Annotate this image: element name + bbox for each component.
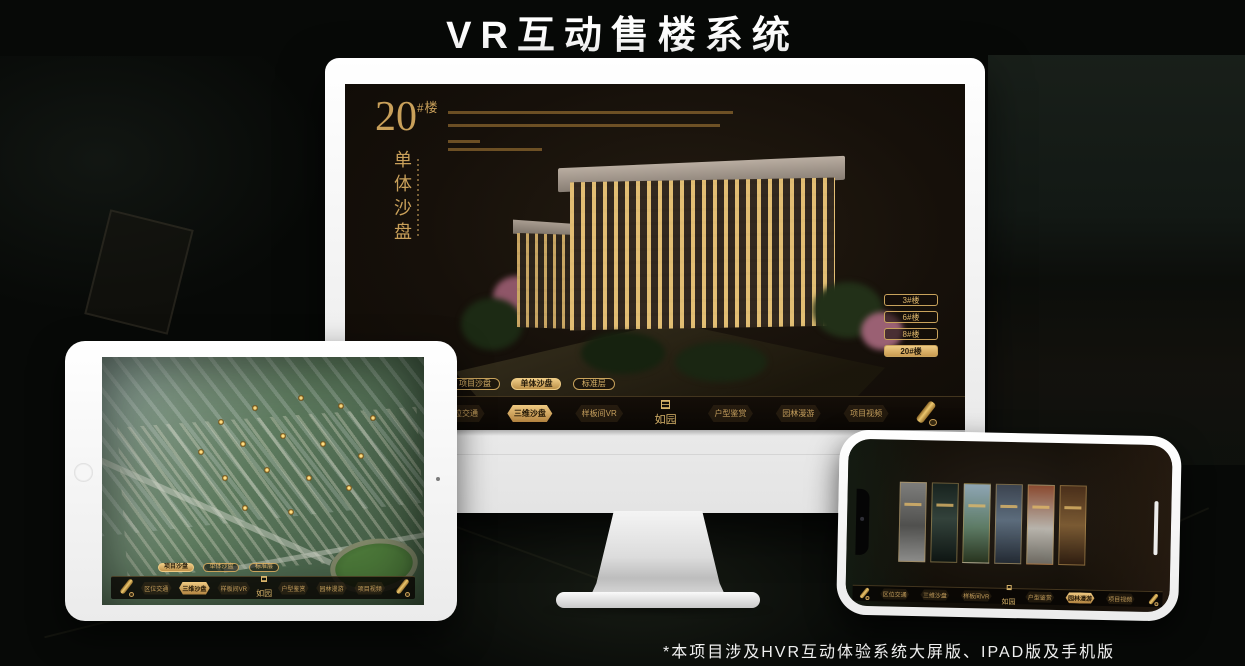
scroll-tip <box>129 592 134 597</box>
nav-item-garden-roam[interactable]: 园林漫游 <box>315 582 349 595</box>
floor-button-20[interactable]: 20#楼 <box>884 345 938 357</box>
brand-logo: 如园 <box>256 576 272 601</box>
nav-item-showroom-vr[interactable]: 样板间VR <box>573 405 626 422</box>
scroll-tip <box>405 592 410 597</box>
tree-green <box>581 332 665 374</box>
tab-standard-floor[interactable]: 标准层 <box>249 563 279 572</box>
gallery-panel-courtyard[interactable] <box>898 482 927 563</box>
tablet-sandbox-tabs: 项目沙盘 单体沙盘 标准层 <box>158 555 284 573</box>
nav-item-floorplans[interactable]: 户型鉴赏 <box>705 405 755 422</box>
monitor-stand-base <box>556 592 760 608</box>
brand-logo: 如园 <box>1001 584 1015 608</box>
seal-icon <box>261 576 267 582</box>
tree-green <box>461 298 523 350</box>
nav-item-transport[interactable]: 区位交通 <box>879 588 911 600</box>
scroll-tip <box>866 596 870 600</box>
tab-single-sandbox[interactable]: 单体沙盘 <box>203 563 239 572</box>
scroll-brush-icon[interactable] <box>1144 592 1159 606</box>
gallery-panel-autumn[interactable] <box>1026 484 1055 565</box>
floor-button-8[interactable]: 8#楼 <box>884 328 938 340</box>
background-photo-right <box>988 55 1245 465</box>
nav-item-showroom-vr[interactable]: 样板间VR <box>216 582 252 595</box>
scroll-tip <box>929 419 937 426</box>
seal-icon <box>1006 584 1011 589</box>
scroll-brush-icon[interactable] <box>115 578 135 598</box>
floor-button-3[interactable]: 3#楼 <box>884 294 938 306</box>
nav-item-3d-sandbox[interactable]: 三维沙盘 <box>919 589 951 601</box>
panel-label <box>1064 506 1082 509</box>
scroll-brush-icon[interactable] <box>909 400 939 428</box>
monitor-stand-neck <box>591 511 725 595</box>
building-facade[interactable] <box>570 178 835 331</box>
description-line <box>448 148 542 151</box>
tree-green <box>675 342 767 382</box>
panorama-gallery <box>898 482 1092 566</box>
phone-device: 区位交通 三维沙盘 样板间VR 如园 户型鉴赏 园林漫游 项目视频 <box>836 429 1182 621</box>
tab-single-sandbox[interactable]: 单体沙盘 <box>511 378 561 390</box>
seal-icon <box>661 400 670 409</box>
description-line <box>448 111 733 114</box>
gallery-panel-building[interactable] <box>994 484 1023 565</box>
panel-label <box>1032 506 1050 509</box>
nav-item-3d-sandbox[interactable]: 三维沙盘 <box>177 582 211 595</box>
brand-logo-text: 如园 <box>1001 597 1015 605</box>
nav-item-floorplans[interactable]: 户型鉴赏 <box>276 582 310 595</box>
phone-camera-icon <box>860 517 864 521</box>
block-number-heading: 20#楼 <box>375 96 439 138</box>
brand-logo-text: 如园 <box>256 589 272 598</box>
nav-item-floorplans[interactable]: 户型鉴赏 <box>1024 591 1056 603</box>
tab-project-sandbox[interactable]: 项目沙盘 <box>450 378 500 390</box>
brand-logo-text: 如园 <box>655 414 677 426</box>
tablet-device: 项目沙盘 单体沙盘 标准层 区位交通 三维沙盘 样板间VR 如园 户型鉴赏 园林… <box>65 341 457 621</box>
nav-item-3d-sandbox[interactable]: 三维沙盘 <box>505 405 555 422</box>
promo-composite: VR互动售楼系统 20#楼 单体沙盘 <box>0 0 1245 666</box>
nav-item-showroom-vr[interactable]: 样板间VR <box>959 590 994 602</box>
floor-button-6[interactable]: 6#楼 <box>884 311 938 323</box>
tablet-camera-dot <box>436 477 440 481</box>
tablet-bottom-nav: 区位交通 三维沙盘 样板间VR 如园 户型鉴赏 园林漫游 项目视频 <box>111 576 415 599</box>
phone-notch <box>855 489 869 555</box>
page-title: VR互动售楼系统 <box>0 4 1245 59</box>
scroll-tip <box>1154 602 1158 606</box>
nav-item-project-video[interactable]: 项目视频 <box>841 405 891 422</box>
tab-standard-floor[interactable]: 标准层 <box>573 378 615 390</box>
floor-selector: 3#楼 6#楼 8#楼 20#楼 <box>884 294 938 362</box>
vertical-deco-line <box>417 158 419 236</box>
scroll-brush-icon[interactable] <box>391 578 411 598</box>
block-suffix: #楼 <box>417 100 439 115</box>
tablet-screen: 项目沙盘 单体沙盘 标准层 区位交通 三维沙盘 样板间VR 如园 户型鉴赏 园林… <box>102 357 424 605</box>
gallery-panel-interior[interactable] <box>930 482 959 563</box>
nav-item-project-video[interactable]: 项目视频 <box>1104 593 1136 605</box>
block-number: 20 <box>375 94 417 140</box>
panel-label <box>1000 505 1018 508</box>
nav-item-garden-roam[interactable]: 园林漫游 <box>1064 592 1096 604</box>
nav-item-garden-roam[interactable]: 园林漫游 <box>773 405 823 422</box>
sandbox-tabs: 项目沙盘 单体沙盘 标准层 <box>450 373 622 391</box>
footnote: *本项目涉及HVR互动体验系统大屏版、IPAD版及手机版 <box>663 638 1115 662</box>
tab-project-sandbox[interactable]: 项目沙盘 <box>158 563 194 572</box>
gallery-panel-garden[interactable] <box>962 483 991 564</box>
scroll-brush-icon[interactable] <box>855 586 870 600</box>
section-title-vertical: 单体沙盘 <box>389 150 415 246</box>
panel-label <box>936 504 954 507</box>
tablet-home-button[interactable] <box>74 463 93 482</box>
nav-item-transport[interactable]: 区位交通 <box>139 582 173 595</box>
building-wing-facade <box>517 233 575 329</box>
panel-label <box>904 503 922 506</box>
nav-item-project-video[interactable]: 项目视频 <box>353 582 387 595</box>
gallery-panel-cabinet[interactable] <box>1058 485 1087 566</box>
brand-logo: 如园 <box>644 400 688 428</box>
description-line <box>448 124 720 127</box>
description-line <box>448 140 480 143</box>
panel-label <box>968 504 986 507</box>
phone-screen: 区位交通 三维沙盘 样板间VR 如园 户型鉴赏 园林漫游 项目视频 <box>845 439 1172 613</box>
